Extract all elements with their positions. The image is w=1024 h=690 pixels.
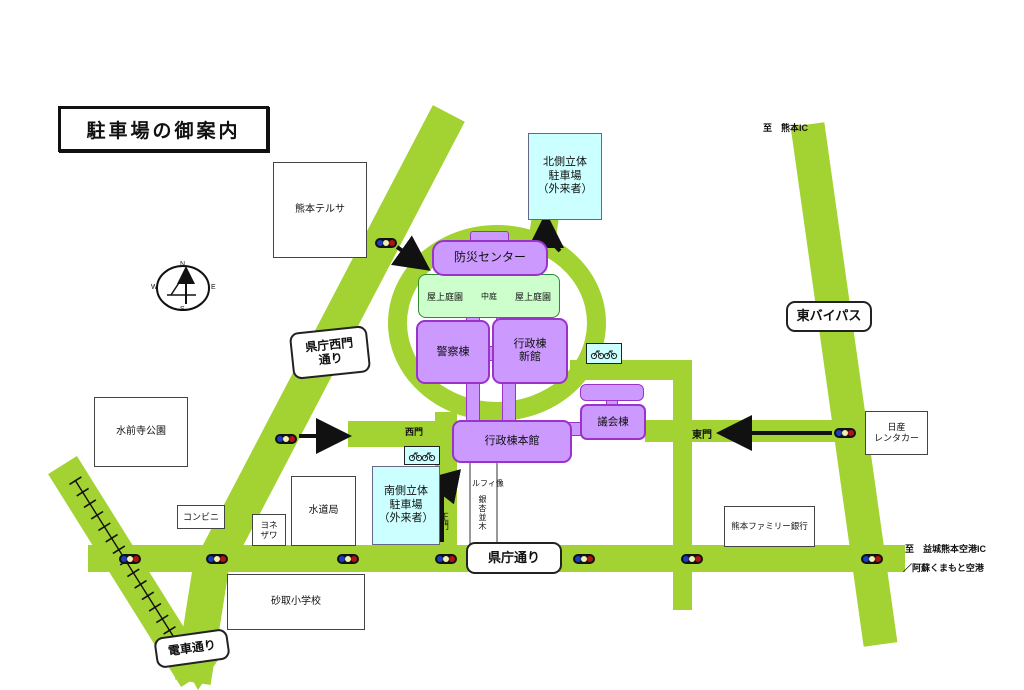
north-parking-line1: 北側立体 <box>543 156 587 170</box>
north-parking-line3: （外来者） <box>538 183 593 197</box>
bicycle-parking-south <box>404 446 440 465</box>
assembly-upper-bar <box>580 384 644 401</box>
road-vertical-east <box>673 360 692 610</box>
compass-e-label: E <box>211 284 216 291</box>
nissan-line1: 日産 <box>887 422 905 433</box>
admin-annex-line2: 新館 <box>519 351 541 364</box>
bicycle-icon <box>590 347 618 360</box>
ginkgo-trees-label: 銀杏並木 <box>477 495 488 531</box>
admin-main-building: 行政棟本館 <box>452 420 572 463</box>
traffic-light-kencho-4 <box>435 554 457 564</box>
traffic-light-kencho-6 <box>681 554 703 564</box>
traffic-light-northwest <box>375 238 397 248</box>
yonezawa-line1: ヨネ <box>260 520 277 530</box>
west-gate-label: 西門 <box>405 425 423 438</box>
to-airport-ic-label: 至 益城熊本空港IC <box>905 542 986 555</box>
east-gate-label: 東門 <box>692 426 712 441</box>
courtyard-label: 中庭 <box>471 275 507 317</box>
kencho-street-label: 県庁通り <box>466 542 562 574</box>
south-parking-line2: 駐車場 <box>390 499 423 513</box>
luffy-statue-label: ルフィ像 <box>472 478 504 489</box>
main-gate-label: 正門 <box>438 512 451 530</box>
north-parking-box: 北側立体 駐車場 （外来者） <box>528 133 602 220</box>
road-west-gate-approach <box>348 421 458 447</box>
traffic-light-kencho-1 <box>119 554 141 564</box>
admin-annex-line1: 行政棟 <box>514 338 547 351</box>
rooftop-garden-right-label: 屋上庭園 <box>507 275 559 317</box>
compass <box>157 266 209 310</box>
police-building: 警察棟 <box>416 320 490 384</box>
connector-police-main <box>466 377 480 426</box>
connector-annex-main <box>502 377 516 426</box>
convenience-box: コンビニ <box>177 505 225 529</box>
yonezawa-box: ヨネ ザワ <box>252 514 286 546</box>
compass-s-label: S <box>180 306 185 313</box>
bicycle-parking-east <box>586 343 622 364</box>
to-kumamoto-ic-label: 至 熊本IC <box>763 121 808 134</box>
seimon-street-label: 県庁西門 通り <box>289 325 371 380</box>
admin-annex-building: 行政棟 新館 <box>492 318 568 384</box>
road-east-gate <box>645 420 840 442</box>
suizenji-park-box: 水前寺公園 <box>94 397 188 467</box>
nissan-rentacar-box: 日産 レンタカー <box>865 411 928 455</box>
traffic-light-kencho-2 <box>206 554 228 564</box>
rooftop-garden-strip: 屋上庭園 中庭 屋上庭園 <box>418 274 560 318</box>
south-parking-line1: 南側立体 <box>384 485 428 499</box>
yonezawa-line2: ザワ <box>260 530 277 540</box>
assembly-building: 議会棟 <box>580 404 646 440</box>
bicycle-icon <box>408 449 436 462</box>
sunatori-school-box: 砂取小学校 <box>227 574 365 630</box>
traffic-light-west-gate <box>275 434 297 444</box>
parking-guide-map: N S W E 駐車場の御案内 屋上庭園 中庭 屋上庭園 防災センター 警察棟 … <box>0 0 1024 690</box>
to-aso-airport-label: ／阿蘇くまもと空港 <box>903 561 984 574</box>
compass-n-label: N <box>180 261 185 268</box>
north-parking-line2: 駐車場 <box>549 170 582 184</box>
terusa-box: 熊本テルサ <box>273 162 367 258</box>
east-bypass-label: 東バイパス <box>786 301 872 332</box>
seimon-street-line2: 通り <box>318 351 343 367</box>
south-parking-box: 南側立体 駐車場 （外来者） <box>372 466 440 545</box>
traffic-light-kencho-5 <box>573 554 595 564</box>
traffic-light-kencho-7 <box>861 554 883 564</box>
map-title: 駐車場の御案内 <box>58 106 269 152</box>
nissan-line2: レンタカー <box>874 433 919 444</box>
rooftop-garden-left-label: 屋上庭園 <box>419 275 471 317</box>
traffic-light-kencho-3 <box>337 554 359 564</box>
compass-w-label: W <box>151 284 158 291</box>
bosai-center-building: 防災センター <box>432 240 548 276</box>
waterworks-box: 水道局 <box>291 476 356 546</box>
traffic-light-east-gate <box>834 428 856 438</box>
family-bank-box: 熊本ファミリー銀行 <box>724 506 815 547</box>
south-parking-line3: （外来者） <box>379 512 434 526</box>
